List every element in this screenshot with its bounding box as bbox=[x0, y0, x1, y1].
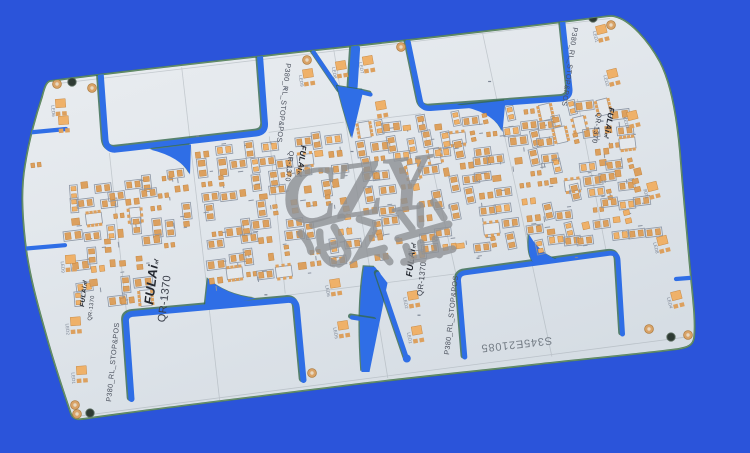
svg-text:CZY: CZY bbox=[277, 137, 442, 243]
svg-text:LED9: LED9 bbox=[60, 261, 66, 273]
svg-text:LED2: LED2 bbox=[65, 323, 71, 335]
svg-text:LED6: LED6 bbox=[50, 105, 56, 117]
svg-text:LED1: LED1 bbox=[71, 372, 77, 384]
